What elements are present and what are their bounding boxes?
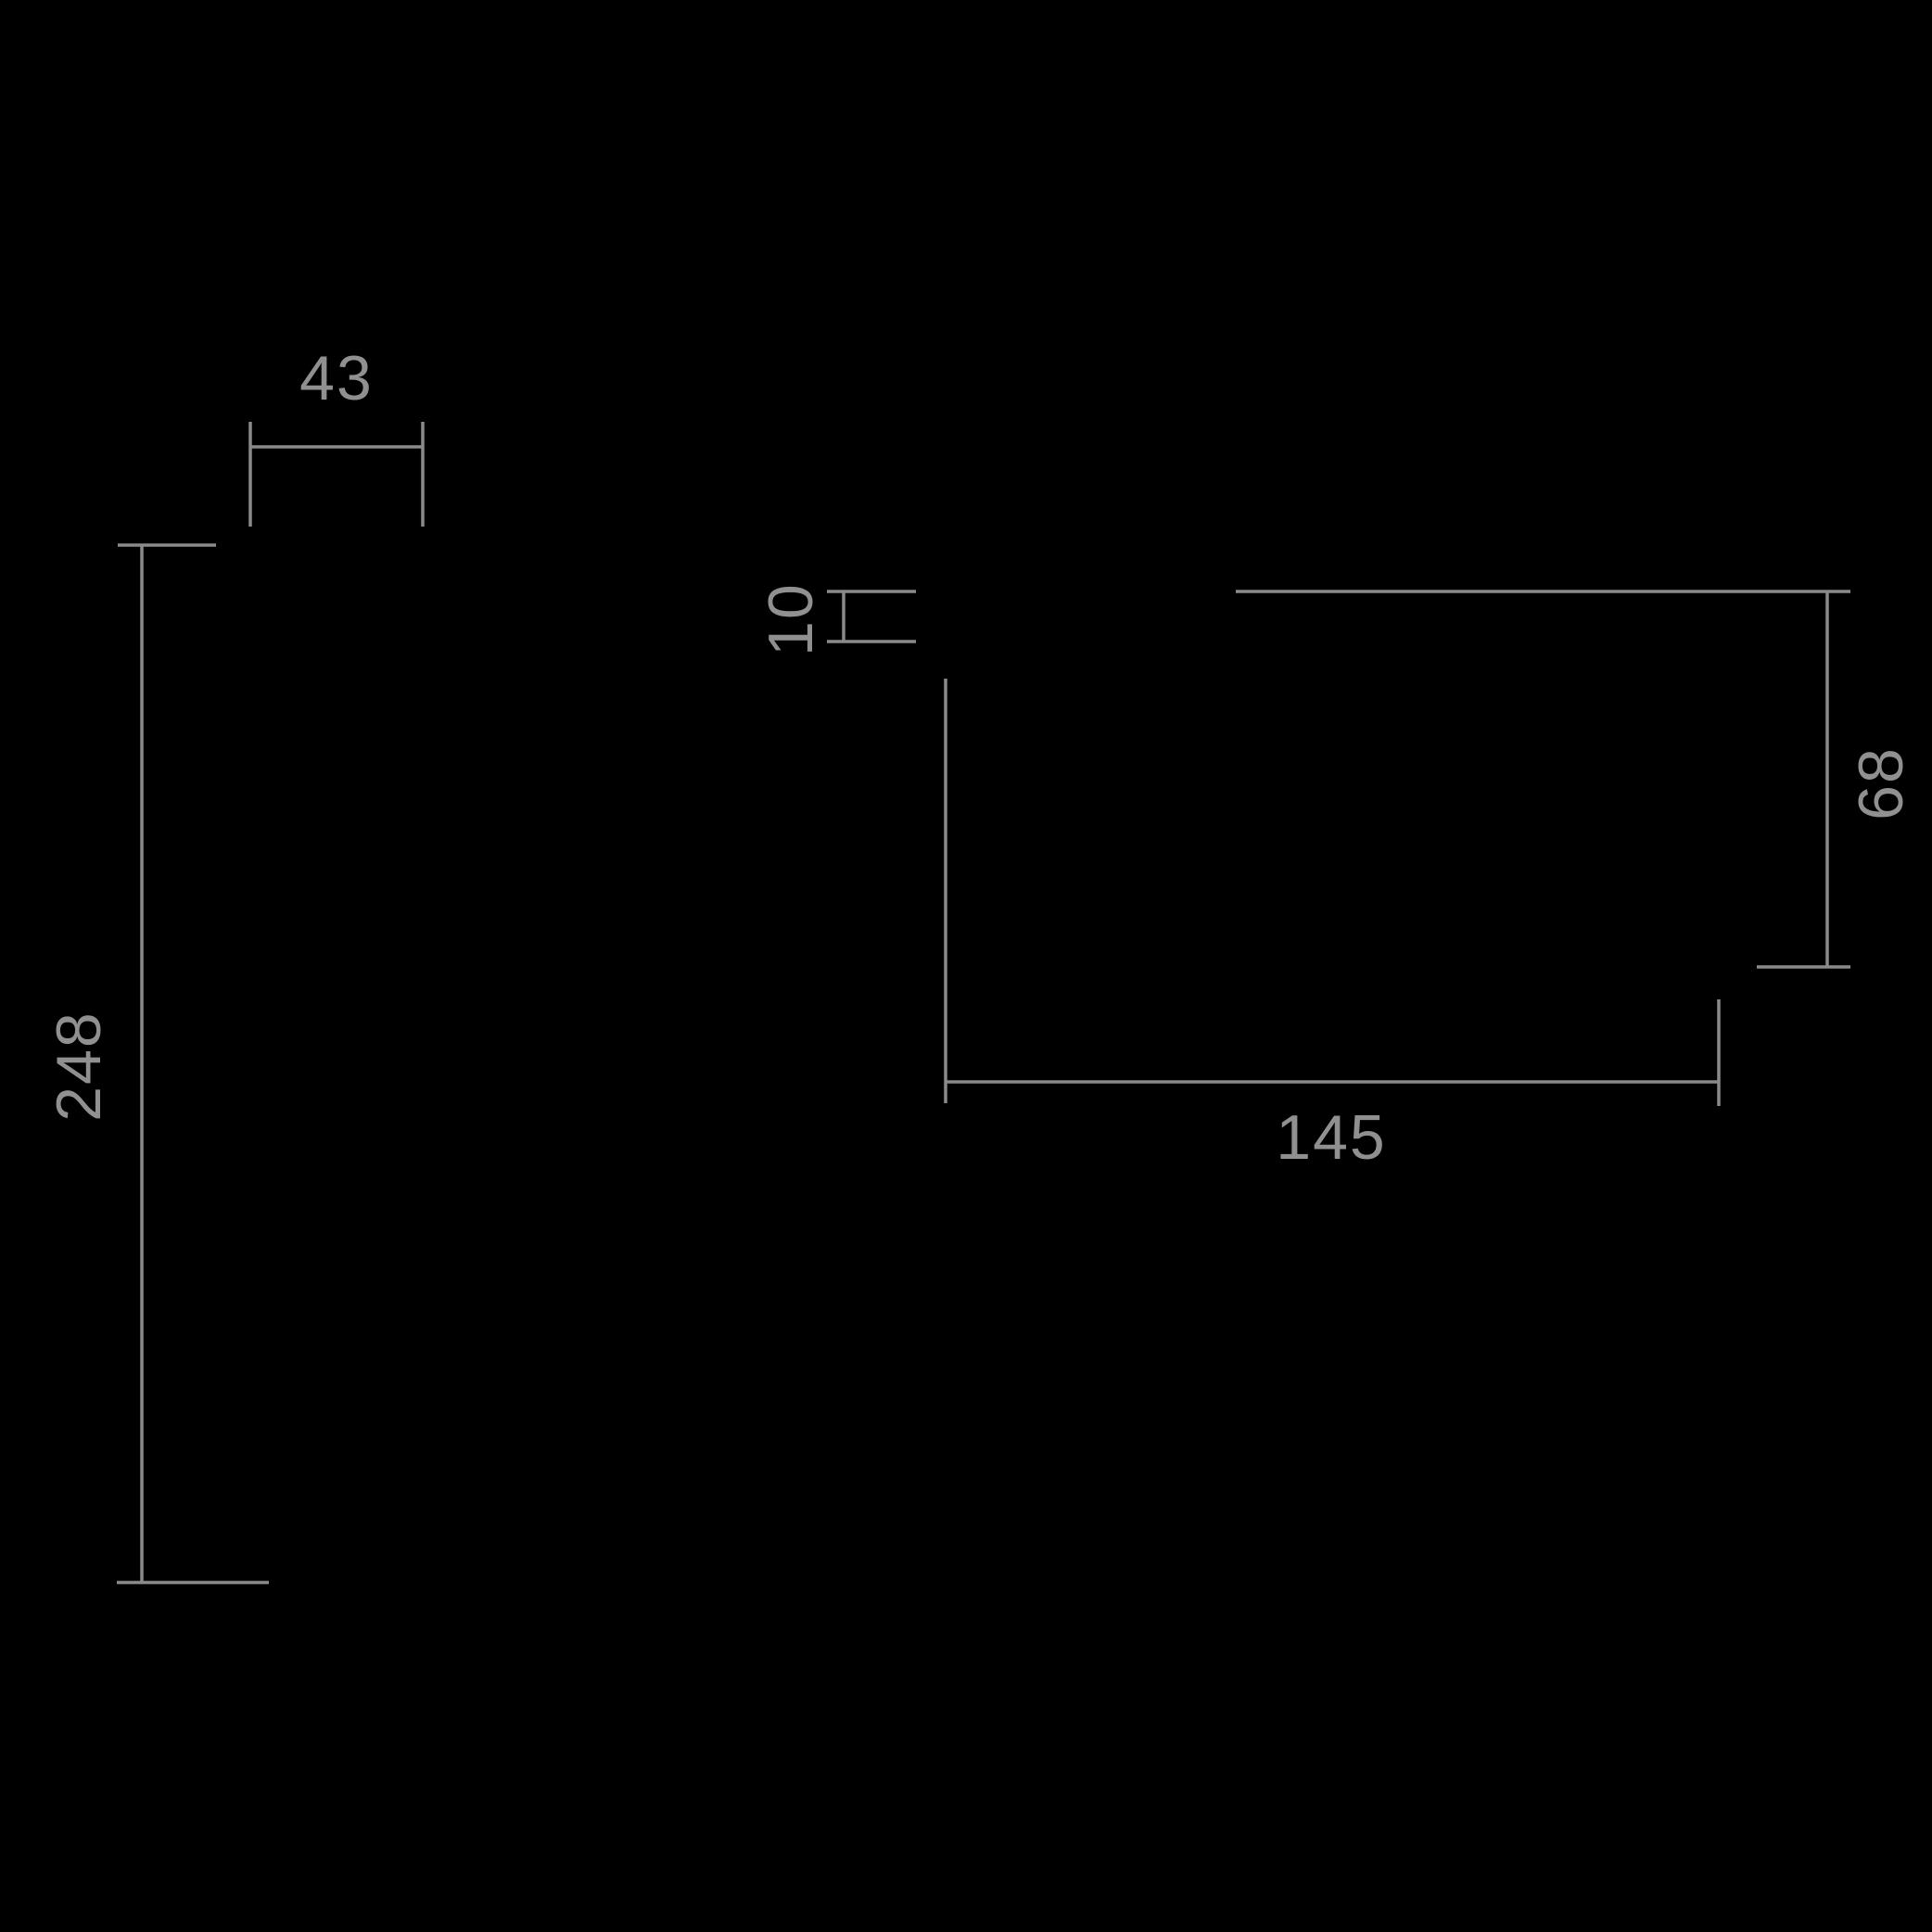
dim-10-label: 10	[755, 582, 827, 656]
dimension-lines-layer	[0, 0, 1932, 1932]
technical-drawing-canvas: 43 248 10 68 145	[0, 0, 1932, 1932]
dim-248-label: 248	[43, 1010, 115, 1121]
dim-145-label: 145	[1276, 1101, 1386, 1174]
dim-43-label: 43	[299, 342, 374, 414]
dim-68-label: 68	[1845, 746, 1917, 820]
